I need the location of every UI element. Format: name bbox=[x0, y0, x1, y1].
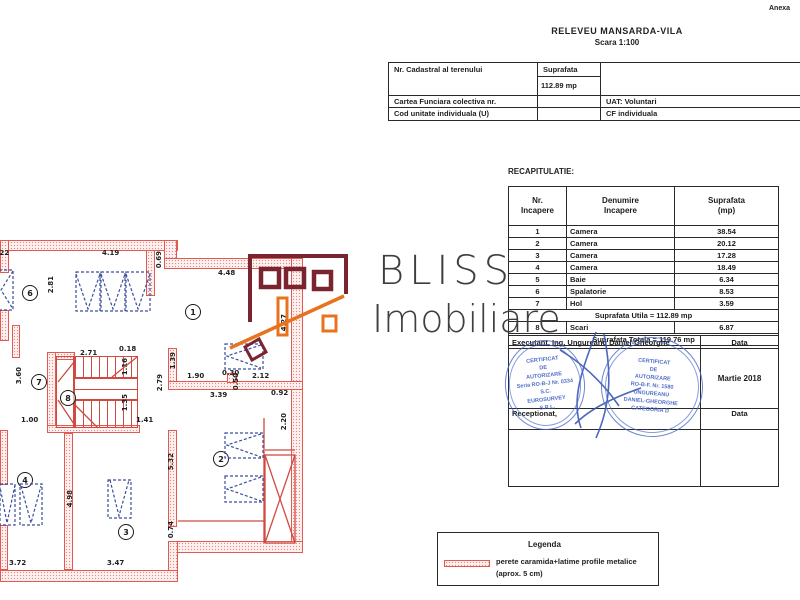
shaft-and-stair-lines bbox=[58, 357, 295, 543]
legend-wall-label: perete caramida+latime profile metalice bbox=[496, 557, 637, 566]
legend-wall-symbol bbox=[444, 560, 490, 567]
legend-box: Legenda perete caramida+latime profile m… bbox=[437, 532, 659, 586]
stamp-right-text: CERTIFICATDEAUTORIZARERO-B-F. Nr. 1580UN… bbox=[622, 357, 681, 417]
logo-brand-subtext: Imobiliare bbox=[372, 297, 561, 341]
logo-house-icon bbox=[230, 256, 348, 360]
legend-wall-label-2: (aprox. 5 cm) bbox=[496, 569, 543, 578]
stamp-left-text: CERTIFICATDEAUTORIZARESeria RO-B-J Nr. 0… bbox=[514, 354, 576, 415]
scanned-document-page: { "colors": { "wall_red": "#e05a52", "wi… bbox=[0, 0, 800, 600]
logo-brand-text: BLISS bbox=[378, 248, 514, 294]
window-symbols bbox=[0, 270, 263, 525]
legend-title: Legenda bbox=[528, 540, 561, 549]
